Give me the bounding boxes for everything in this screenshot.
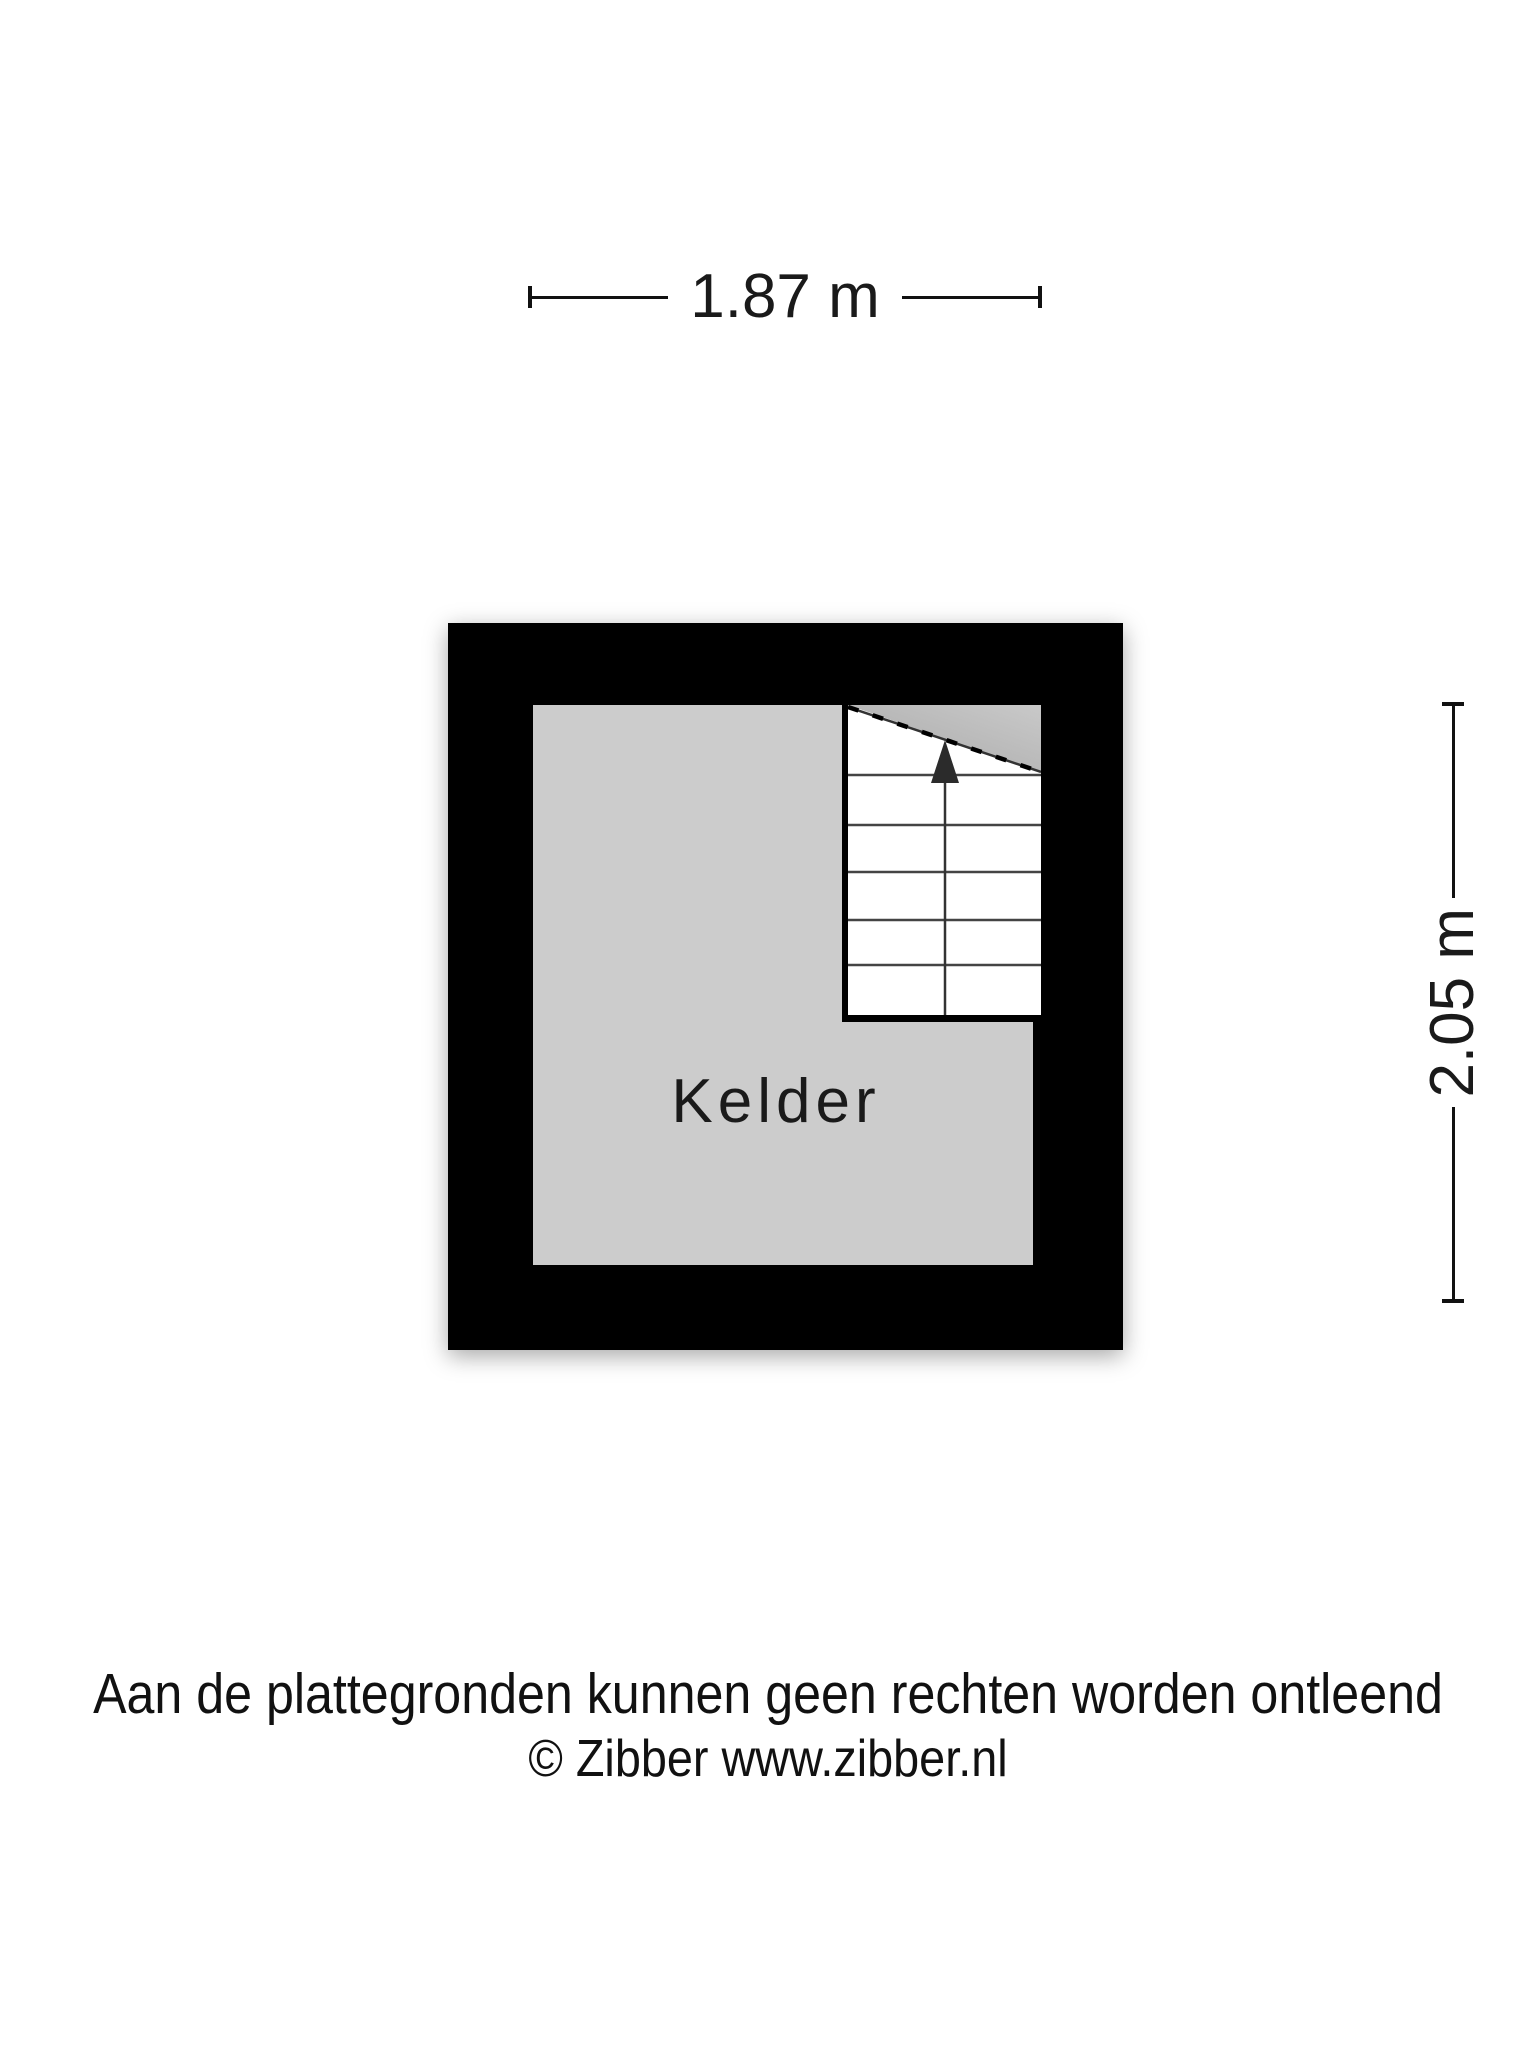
width-dimension-label: 1.87 m xyxy=(668,266,902,328)
dimension-line xyxy=(532,296,668,299)
dimension-line xyxy=(1452,706,1455,898)
room-label: Kelder xyxy=(533,1071,1033,1133)
staircase-drawing xyxy=(848,705,1041,1015)
dimension-tick xyxy=(1038,286,1042,308)
height-dimension-label: 2.05 m xyxy=(1418,908,1488,1098)
stairs-up-arrow-icon xyxy=(931,740,959,1015)
dimension-line xyxy=(902,296,1038,299)
height-dimension: 2.05 m xyxy=(1418,702,1488,1303)
copyright-text: © Zibber www.zibber.nl xyxy=(77,1730,1459,1788)
floorplan-walls: Kelder xyxy=(448,623,1123,1350)
floorplan-page: 1.87 m 2.05 m Kelder xyxy=(0,0,1536,2048)
staircase xyxy=(842,705,1041,1022)
width-dimension: 1.87 m xyxy=(528,272,1042,322)
disclaimer-text: Aan de plattegronden kunnen geen rechten… xyxy=(92,1663,1444,1725)
dimension-tick xyxy=(1442,1299,1464,1303)
dimension-line xyxy=(1452,1107,1455,1299)
